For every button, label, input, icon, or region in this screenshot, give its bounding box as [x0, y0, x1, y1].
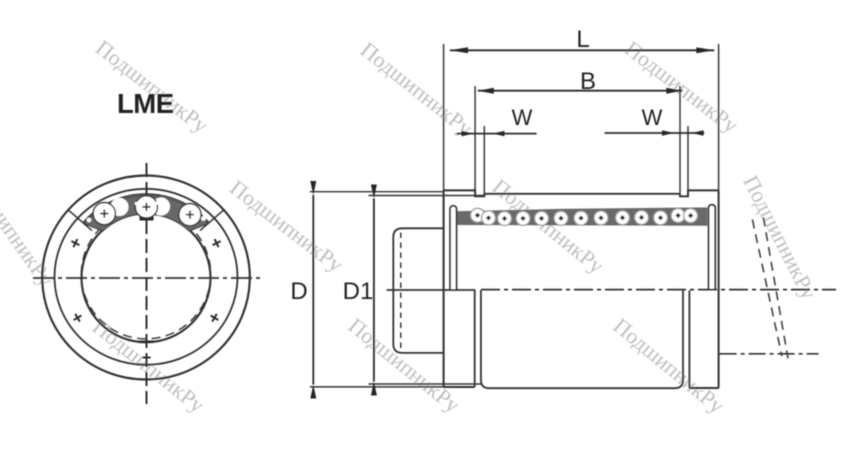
- svg-text:L: L: [576, 26, 589, 53]
- svg-text:W: W: [512, 105, 533, 130]
- svg-text:D: D: [290, 278, 307, 305]
- svg-text:W: W: [642, 105, 663, 130]
- svg-text:B: B: [580, 68, 596, 95]
- svg-text:D1: D1: [343, 278, 374, 305]
- svg-text:LME: LME: [117, 88, 174, 119]
